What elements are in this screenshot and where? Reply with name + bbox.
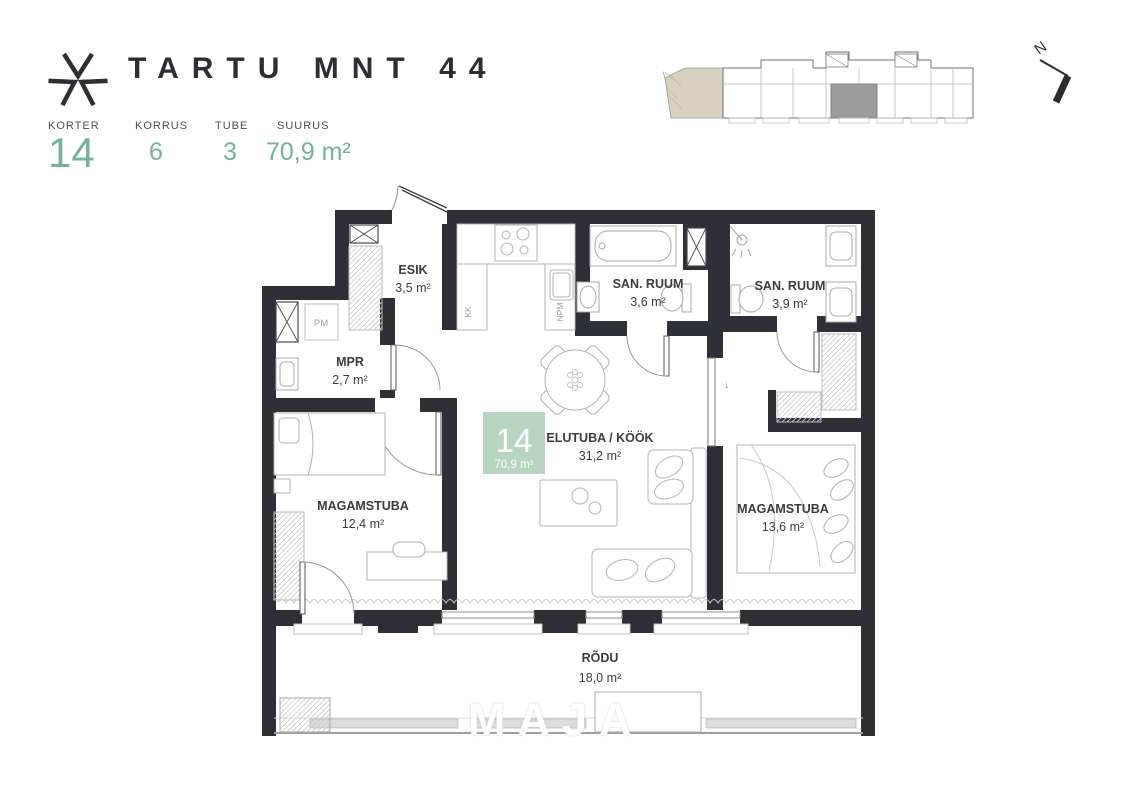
unit-badge-number: 14 [496, 422, 533, 459]
room-area-magamistuba2: 13,6 m² [762, 520, 804, 534]
north-arrow: N [1022, 36, 1092, 108]
room-label-elutuba: ELUTUBA / KÖÖK [546, 430, 653, 445]
building-overview-plan [663, 38, 995, 126]
npm-label: NPM [555, 303, 565, 322]
slide-direction-arrow: ↓ [724, 379, 730, 391]
room-area-elutuba: 31,2 m² [579, 449, 621, 463]
stat-korrus-label: KORRUS [135, 120, 188, 132]
stat-korter-value: 14 [48, 132, 100, 174]
building-end-section [665, 68, 723, 118]
wardrobe [777, 392, 821, 422]
watermark: MAJA [468, 694, 644, 746]
side-table [274, 479, 290, 493]
stat-tube-value: 3 [223, 138, 248, 167]
room-area-esik: 3,5 m² [395, 281, 430, 295]
pillow [279, 418, 299, 443]
room-label-san1: SAN. RUUM [613, 277, 684, 291]
apartment-plan: ↓ KK NPM [262, 162, 878, 742]
room-label-esik: ESIK [398, 263, 427, 277]
page-title: TARTU MNT 44 [128, 52, 498, 86]
stat-suurus: SUURUS 70,9 m² [277, 120, 351, 167]
right-bedroom-furniture [737, 334, 857, 573]
entry-door [392, 186, 447, 224]
stat-tube: TUBE 3 [215, 120, 248, 167]
kk-label: KK [463, 306, 473, 318]
room-area-san1: 3,6 m² [630, 295, 665, 309]
room-label-mpr: MPR [336, 355, 364, 369]
stat-tube-label: TUBE [215, 120, 248, 132]
stat-suurus-label: SUURUS [277, 120, 351, 132]
room-label-magamistuba2: MAGAMSTUBA [737, 502, 829, 516]
desk-chair [393, 542, 425, 557]
mini-balconies [729, 118, 967, 123]
pm-label: PM [314, 318, 328, 329]
north-label: N [1031, 38, 1050, 58]
dining-table [545, 350, 605, 410]
room-label-san2: SAN. RUUM [755, 279, 826, 293]
balcony-door-leaf [300, 562, 305, 614]
planter-box [280, 698, 330, 732]
stat-korrus-value: 6 [149, 138, 188, 167]
unit-badge-area: 70,9 m² [495, 459, 534, 471]
room-area-san2: 3,9 m² [772, 297, 807, 311]
sliding-door: ↓ [708, 358, 730, 446]
room-area-rodu: 18,0 m² [579, 671, 621, 685]
room-label-rodu: RÕDU [582, 650, 619, 665]
stove [495, 225, 537, 261]
coffee-table [540, 480, 617, 526]
highlighted-unit [831, 84, 877, 118]
curtain-line [278, 600, 854, 604]
wardrobe [822, 334, 856, 410]
dining-set [539, 344, 611, 416]
room-label-magamistuba1: MAGAMSTUBA [317, 499, 409, 513]
room-area-magamistuba1: 12,4 m² [342, 517, 384, 531]
floor-plan-page: TARTU MNT 44 KORTER 14 KORRUS 6 TUBE 3 S… [0, 0, 1131, 800]
stat-korrus: KORRUS 6 [135, 120, 188, 167]
unit-badge: 14 70,9 m² [483, 412, 545, 474]
brand-logo-icon [46, 48, 110, 112]
stat-korter: KORTER 14 [48, 120, 100, 174]
hall-closet [349, 246, 382, 330]
room-area-mpr: 2,7 m² [332, 373, 367, 387]
